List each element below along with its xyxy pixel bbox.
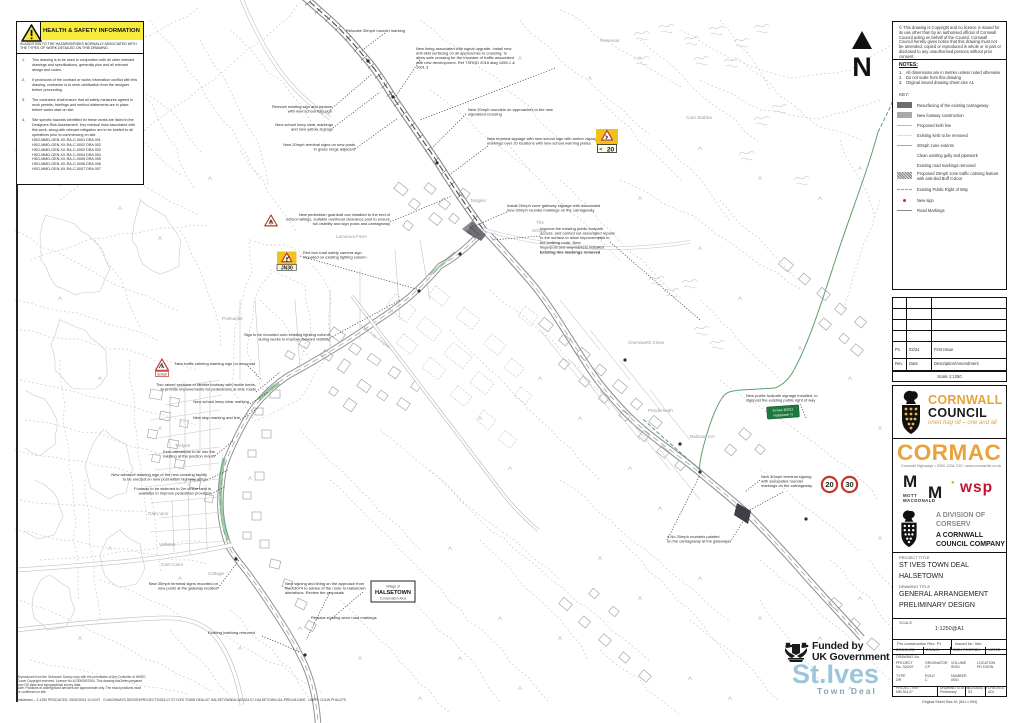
svg-text:during works to improve forwar: during works to improve forward visibili… — [258, 337, 330, 342]
svg-text:markings over 20 locations wit: markings over 20 locations with new scho… — [487, 141, 591, 146]
svg-text:Carn Cairn: Carn Cairn — [161, 562, 184, 567]
svg-text:Relocate 30mph roundel marking: Relocate 30mph roundel marking — [346, 28, 405, 33]
svg-text:signalised crossing: signalised crossing — [468, 112, 502, 117]
svg-text:Replace existing worn road mar: Replace existing worn road markings — [311, 615, 377, 620]
svg-text:JN30: JN30 — [281, 265, 293, 271]
svg-text:new posts at the gateway locat: new posts at the gateway location — [158, 586, 218, 591]
svg-text:Velbans: Velbans — [159, 542, 176, 547]
svg-text:Tangies: Tangies — [470, 198, 487, 203]
svg-text:New stop marking and line: New stop marking and line — [193, 415, 241, 420]
svg-text:Carn Stabba: Carn Stabba — [686, 115, 712, 120]
svg-text:School: School — [157, 373, 167, 377]
svg-text:20: 20 — [607, 146, 615, 153]
svg-text:Polmanter: Polmanter — [222, 316, 243, 321]
svg-text:and new yellow zigzags: and new yellow zigzags — [291, 127, 333, 132]
svg-text:≈: ≈ — [600, 147, 603, 153]
svg-text:Chenoweth Close: Chenoweth Close — [628, 340, 665, 345]
svg-text:Carn Veor: Carn Veor — [148, 511, 169, 516]
svg-text:mounted on existing lighting c: mounted on existing lighting column — [303, 255, 367, 260]
svg-text:Village of: Village of — [386, 585, 400, 589]
svg-text:available to improve pedestria: available to improve pedestrian provisio… — [139, 491, 211, 496]
svg-text:Trelyon: Trelyon — [175, 443, 191, 448]
svg-text:Cottage: Cottage — [208, 571, 225, 576]
svg-text:with new school flag sign: with new school flag sign — [288, 109, 332, 114]
svg-text:20: 20 — [825, 480, 833, 489]
svg-text:Reservoir: Reservoir — [600, 38, 620, 43]
svg-text:on the carriageway at the gate: on the carriageway at the gateways — [667, 539, 730, 544]
svg-text:new 20mph roundel markings on: new 20mph roundel markings on the carria… — [507, 208, 594, 213]
svg-text:Lamanva Farm: Lamanva Farm — [336, 234, 367, 239]
svg-text:1001.3: 1001.3 — [416, 64, 429, 69]
svg-text:Conservation Area: Conservation Area — [380, 597, 406, 601]
svg-text:Balnoon Inn: Balnoon Inn — [690, 434, 715, 439]
svg-text:The: The — [536, 220, 544, 225]
svg-text:signpost the existing public r: signpost the existing public right of wa… — [746, 398, 815, 403]
svg-text:New school keep clear marking: New school keep clear marking — [193, 399, 249, 404]
svg-text:Penderleath: Penderleath — [648, 408, 673, 413]
svg-text:to provide improvements for pe: to provide improvements for pedestrians … — [161, 387, 256, 392]
svg-text:New traffic calming warning si: New traffic calming warning sign on new … — [175, 361, 256, 366]
svg-text:HALSETOWN: HALSETOWN — [375, 590, 411, 596]
svg-text:30: 30 — [845, 480, 853, 489]
svg-text:with new development. Ref TSRG: with new development. Ref TSRGD 2016 dia… — [416, 60, 515, 65]
svg-text:in grass verge adjacent: in grass verge adjacent — [314, 147, 356, 152]
svg-text:Existing hatching removed: Existing hatching removed — [208, 630, 255, 635]
svg-text:full visibility and sign posts: full visibility and sign posts and carri… — [313, 221, 390, 226]
svg-text:N: N — [852, 52, 872, 80]
svg-text:Existing line markings removed: Existing line markings removed — [540, 250, 601, 255]
svg-text:existing at the junction mouth: existing at the junction mouth — [163, 454, 215, 459]
svg-text:markings on the carriageway: markings on the carriageway — [761, 483, 812, 488]
svg-text:to be erected on new post with: to be erected on new post within highway… — [123, 477, 208, 482]
svg-text:School: School — [532, 228, 546, 233]
svg-text:alterations. Review the propos: alterations. Review the proposals — [285, 590, 344, 595]
